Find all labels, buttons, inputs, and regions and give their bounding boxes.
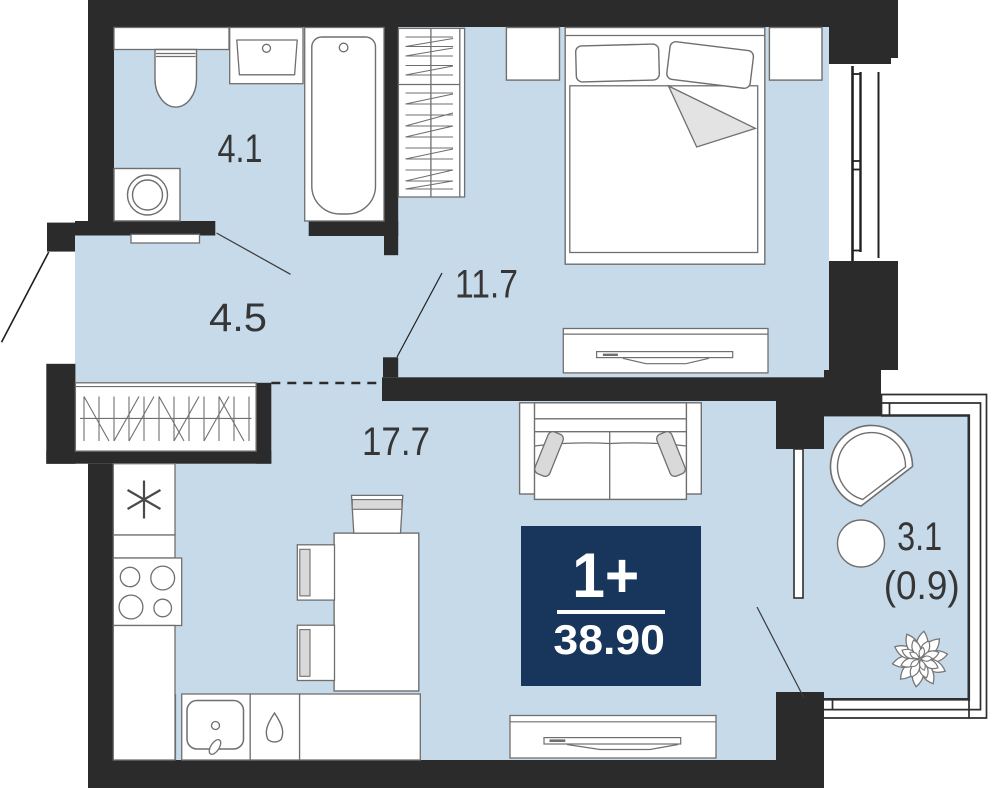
svg-text:4.5: 4.5 <box>209 296 267 340</box>
svg-text:4.1: 4.1 <box>218 127 263 171</box>
svg-text:17.7: 17.7 <box>362 420 430 464</box>
svg-text:11.7: 11.7 <box>455 263 518 307</box>
svg-text:(0.9): (0.9) <box>884 564 960 608</box>
svg-text:38.90: 38.90 <box>553 616 665 663</box>
svg-text:3.1: 3.1 <box>897 515 942 559</box>
svg-text:1+: 1+ <box>572 541 639 611</box>
